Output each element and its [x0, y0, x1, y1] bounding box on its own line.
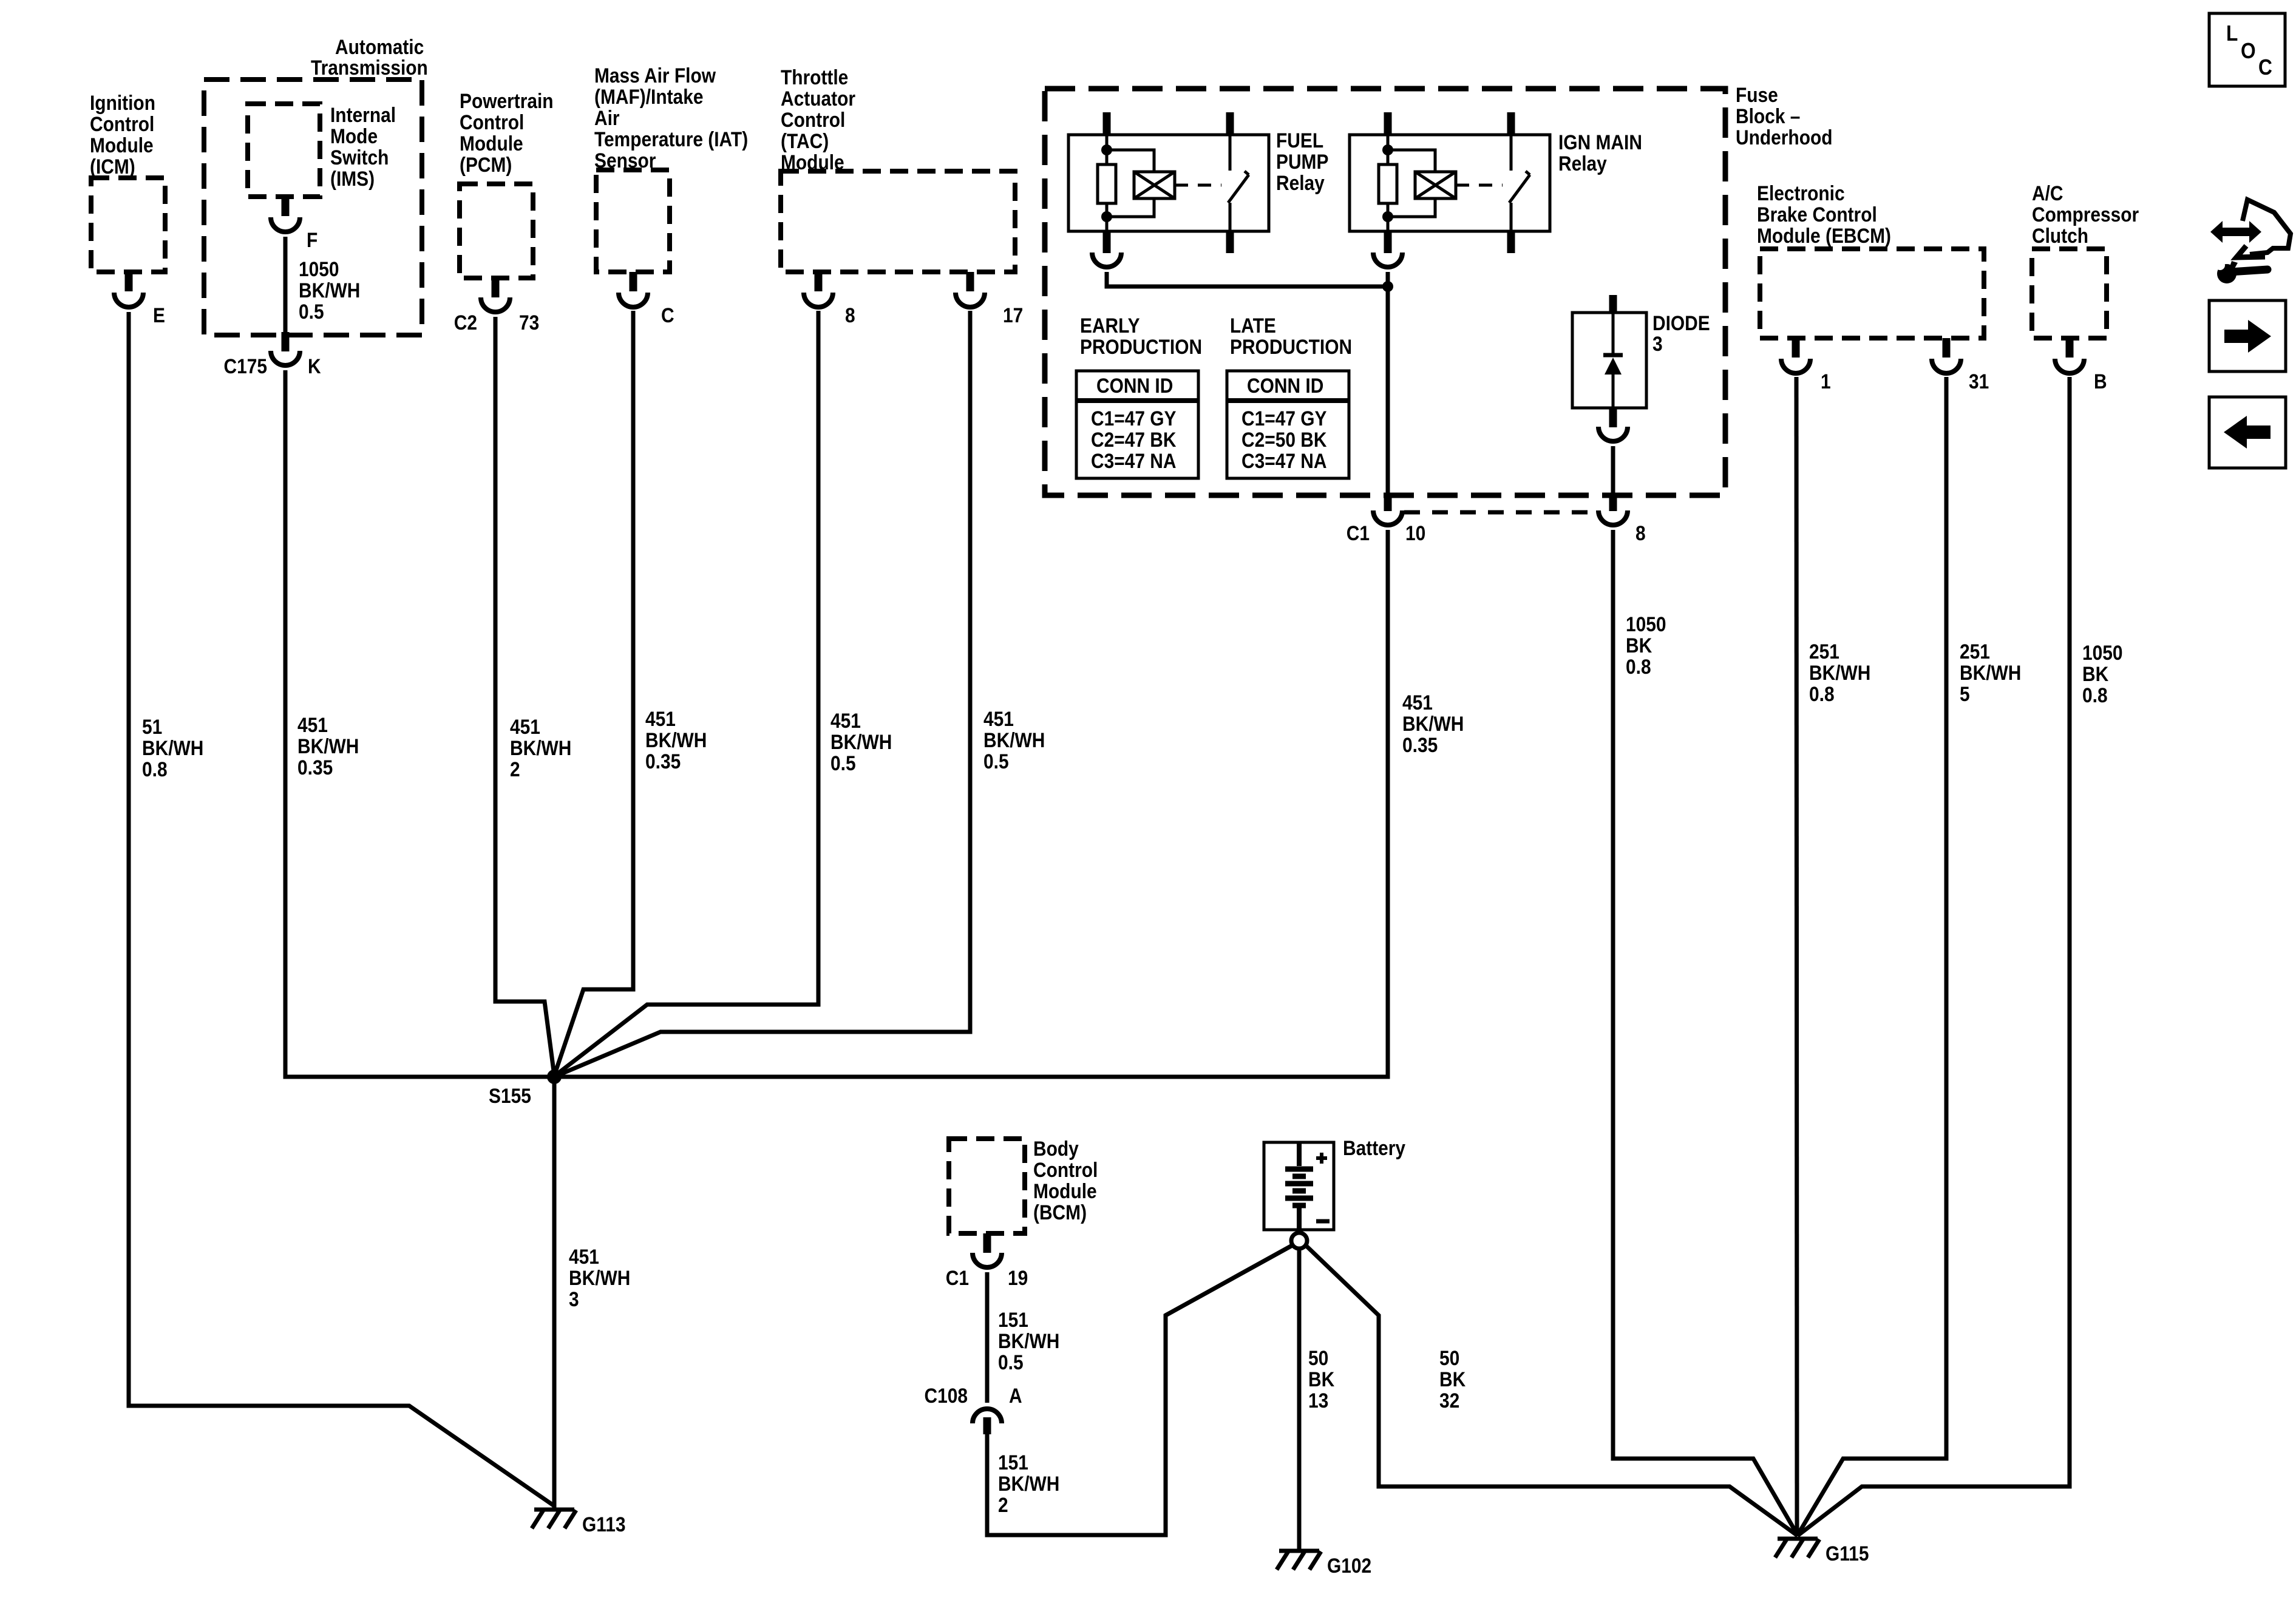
svg-text:C2=50 BK: C2=50 BK: [1241, 428, 1326, 451]
svg-text:BK/WH: BK/WH: [569, 1266, 630, 1289]
svg-text:BK/WH: BK/WH: [830, 730, 892, 753]
svg-text:0.5: 0.5: [983, 750, 1009, 773]
svg-text:BK/WH: BK/WH: [510, 736, 571, 759]
svg-text:1050: 1050: [1626, 612, 1666, 636]
svg-text:CONN ID: CONN ID: [1247, 374, 1323, 397]
svg-text:A: A: [1009, 1384, 1022, 1407]
svg-text:Clutch: Clutch: [2032, 224, 2088, 247]
svg-text:17: 17: [1003, 303, 1023, 327]
svg-text:CONN ID: CONN ID: [1096, 374, 1173, 397]
svg-text:B: B: [2094, 370, 2107, 393]
svg-text:BK/WH: BK/WH: [297, 734, 359, 758]
svg-text:K: K: [308, 354, 321, 378]
svg-text:451: 451: [1402, 691, 1433, 714]
svg-text:BK: BK: [1626, 634, 1652, 657]
svg-text:(PCM): (PCM): [460, 153, 512, 176]
svg-text:C3=47 NA: C3=47 NA: [1241, 449, 1326, 472]
svg-text:251: 251: [1960, 640, 1990, 663]
svg-text:G113: G113: [582, 1513, 626, 1536]
svg-text:G115: G115: [1826, 1542, 1869, 1565]
svg-text:Module: Module: [90, 134, 154, 157]
svg-text:C3=47 NA: C3=47 NA: [1091, 449, 1176, 472]
svg-text:BK/WH: BK/WH: [1402, 712, 1464, 735]
svg-text:C1=47 GY: C1=47 GY: [1091, 407, 1177, 430]
svg-text:451: 451: [297, 713, 328, 736]
svg-text:0.35: 0.35: [1402, 733, 1438, 756]
svg-text:51: 51: [142, 715, 162, 738]
svg-text:451: 451: [645, 707, 676, 730]
svg-text:Switch: Switch: [330, 146, 389, 169]
svg-text:Electronic: Electronic: [1757, 181, 1845, 205]
svg-text:Ignition: Ignition: [90, 91, 155, 114]
svg-text:C: C: [2258, 55, 2272, 80]
svg-text:BK: BK: [1439, 1368, 1466, 1391]
svg-text:BK/WH: BK/WH: [983, 728, 1045, 751]
svg-text:BK: BK: [2082, 662, 2108, 685]
svg-text:451: 451: [569, 1245, 599, 1268]
svg-text:0.35: 0.35: [645, 750, 681, 773]
svg-text:C1: C1: [946, 1266, 969, 1289]
svg-text:73: 73: [519, 311, 539, 334]
svg-text:Control: Control: [460, 110, 524, 134]
svg-text:LATE: LATE: [1230, 314, 1276, 337]
svg-text:Body: Body: [1033, 1137, 1079, 1160]
svg-text:BK/WH: BK/WH: [645, 728, 707, 751]
svg-text:PRODUCTION: PRODUCTION: [1230, 335, 1352, 358]
svg-text:Temperature (IAT): Temperature (IAT): [594, 127, 748, 151]
svg-text:BK: BK: [1308, 1368, 1334, 1391]
svg-text:(ICM): (ICM): [90, 155, 135, 178]
svg-text:13: 13: [1308, 1389, 1328, 1412]
svg-text:451: 451: [510, 715, 540, 738]
svg-text:PUMP: PUMP: [1276, 150, 1328, 173]
svg-text:3: 3: [1652, 332, 1663, 355]
svg-text:BK/WH: BK/WH: [142, 736, 203, 759]
svg-text:Relay: Relay: [1276, 171, 1325, 194]
svg-text:3: 3: [569, 1287, 579, 1310]
svg-text:BK/WH: BK/WH: [1809, 661, 1870, 684]
svg-text:Mode: Mode: [330, 124, 378, 147]
svg-text:Module: Module: [460, 132, 523, 155]
svg-text:2: 2: [510, 758, 520, 781]
svg-text:0.8: 0.8: [1626, 655, 1651, 678]
svg-text:8: 8: [1635, 521, 1646, 544]
svg-text:C2=47 BK: C2=47 BK: [1091, 428, 1176, 451]
svg-text:Mass Air Flow: Mass Air Flow: [594, 64, 716, 87]
svg-text:8: 8: [845, 303, 855, 327]
svg-text:Internal: Internal: [330, 103, 396, 126]
svg-text:451: 451: [830, 709, 861, 732]
svg-text:C: C: [661, 303, 674, 327]
svg-text:E: E: [153, 303, 165, 327]
svg-text:2: 2: [998, 1493, 1008, 1516]
svg-text:(IMS): (IMS): [330, 167, 375, 190]
svg-text:BK/WH: BK/WH: [998, 1329, 1059, 1352]
svg-text:EARLY: EARLY: [1080, 314, 1140, 337]
svg-text:A/C: A/C: [2032, 181, 2063, 205]
svg-text:Brake Control: Brake Control: [1757, 203, 1877, 226]
svg-text:Battery: Battery: [1343, 1136, 1405, 1159]
svg-text:Module (EBCM): Module (EBCM): [1757, 224, 1891, 247]
svg-text:BK/WH: BK/WH: [1960, 661, 2021, 684]
svg-text:Control: Control: [781, 108, 845, 131]
svg-text:F: F: [307, 228, 318, 251]
svg-text:10: 10: [1405, 521, 1425, 544]
svg-text:251: 251: [1809, 640, 1839, 663]
svg-text:0.8: 0.8: [2082, 683, 2108, 707]
svg-text:1050: 1050: [2082, 641, 2123, 664]
svg-text:Fuse: Fuse: [1736, 83, 1778, 106]
svg-text:(MAF)/Intake: (MAF)/Intake: [594, 85, 703, 108]
svg-text:Transmission: Transmission: [311, 56, 428, 79]
svg-text:31: 31: [1969, 370, 1989, 393]
svg-text:BK/WH: BK/WH: [299, 279, 360, 302]
svg-text:Automatic: Automatic: [335, 35, 424, 58]
svg-text:151: 151: [998, 1451, 1028, 1474]
svg-text:0.8: 0.8: [142, 758, 168, 781]
svg-text:Module: Module: [1033, 1179, 1097, 1202]
svg-text:Air: Air: [594, 106, 620, 129]
svg-text:C2: C2: [454, 311, 477, 334]
svg-text:BK/WH: BK/WH: [998, 1472, 1059, 1495]
svg-text:IGN MAIN: IGN MAIN: [1558, 131, 1642, 154]
svg-text:S155: S155: [489, 1084, 531, 1107]
svg-text:(BCM): (BCM): [1033, 1201, 1087, 1224]
svg-text:DIODE: DIODE: [1652, 311, 1710, 334]
svg-text:5: 5: [1960, 682, 1970, 705]
svg-text:PRODUCTION: PRODUCTION: [1080, 335, 1202, 358]
svg-text:Block –: Block –: [1736, 104, 1800, 127]
svg-text:Relay: Relay: [1558, 152, 1607, 175]
svg-text:0.5: 0.5: [299, 300, 324, 323]
svg-text:1050: 1050: [299, 257, 339, 280]
svg-text:Throttle: Throttle: [781, 66, 848, 89]
svg-text:C108: C108: [924, 1384, 968, 1407]
svg-text:(TAC): (TAC): [781, 129, 829, 152]
svg-text:Control: Control: [1033, 1158, 1098, 1181]
svg-text:Control: Control: [90, 112, 154, 135]
svg-text:C175: C175: [223, 354, 267, 378]
svg-text:Underhood: Underhood: [1736, 126, 1833, 149]
svg-text:1: 1: [1821, 370, 1831, 393]
svg-text:Actuator: Actuator: [781, 87, 855, 110]
svg-text:C1=47 GY: C1=47 GY: [1241, 407, 1327, 430]
svg-text:FUEL: FUEL: [1276, 129, 1323, 152]
svg-text:0.8: 0.8: [1809, 682, 1835, 705]
svg-text:50: 50: [1308, 1346, 1328, 1369]
svg-text:Compressor: Compressor: [2032, 203, 2139, 226]
svg-text:151: 151: [998, 1308, 1028, 1331]
svg-text:50: 50: [1439, 1346, 1459, 1369]
svg-text:O: O: [2241, 39, 2256, 63]
svg-text:451: 451: [983, 707, 1014, 730]
svg-text:L: L: [2226, 21, 2238, 46]
svg-text:C1: C1: [1347, 521, 1370, 544]
svg-text:0.5: 0.5: [830, 751, 856, 775]
svg-text:G102: G102: [1327, 1554, 1371, 1577]
svg-text:19: 19: [1008, 1266, 1028, 1289]
svg-text:0.5: 0.5: [998, 1351, 1024, 1374]
svg-text:32: 32: [1439, 1389, 1459, 1412]
svg-text:Powertrain: Powertrain: [460, 89, 554, 112]
svg-text:0.35: 0.35: [297, 756, 333, 779]
